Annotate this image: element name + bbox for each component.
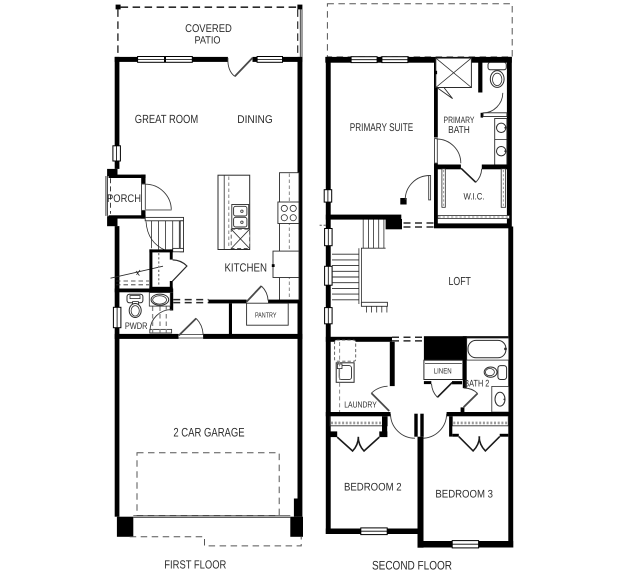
svg-text:BEDROOM 3: BEDROOM 3 (435, 489, 493, 501)
svg-text:GREAT ROOM: GREAT ROOM (135, 112, 198, 126)
svg-text:BATH: BATH (448, 125, 470, 136)
svg-text:LINEN: LINEN (434, 366, 452, 375)
svg-text:SECOND FLOOR: SECOND FLOOR (372, 559, 452, 573)
svg-text:PRIMARY: PRIMARY (444, 115, 475, 125)
svg-text:BATH 2: BATH 2 (464, 379, 489, 390)
svg-text:BEDROOM 2: BEDROOM 2 (344, 482, 402, 494)
svg-text:DINING: DINING (237, 114, 272, 126)
svg-text:LAUNDRY: LAUNDRY (344, 399, 377, 409)
svg-text:PWDR: PWDR (125, 321, 148, 332)
svg-text:LOFT: LOFT (449, 275, 471, 288)
svg-text:2 CAR GARAGE: 2 CAR GARAGE (173, 425, 244, 439)
svg-text:PANTRY: PANTRY (255, 310, 277, 319)
svg-text:KITCHEN: KITCHEN (224, 261, 267, 275)
svg-text:PATIO: PATIO (194, 34, 220, 46)
svg-text:FIRST FLOOR: FIRST FLOOR (164, 558, 226, 572)
svg-text:W.I.C.: W.I.C. (464, 192, 485, 202)
svg-text:COVERED: COVERED (185, 23, 232, 35)
svg-text:PORCH: PORCH (107, 193, 141, 205)
svg-text:PRIMARY SUITE: PRIMARY SUITE (350, 122, 413, 134)
